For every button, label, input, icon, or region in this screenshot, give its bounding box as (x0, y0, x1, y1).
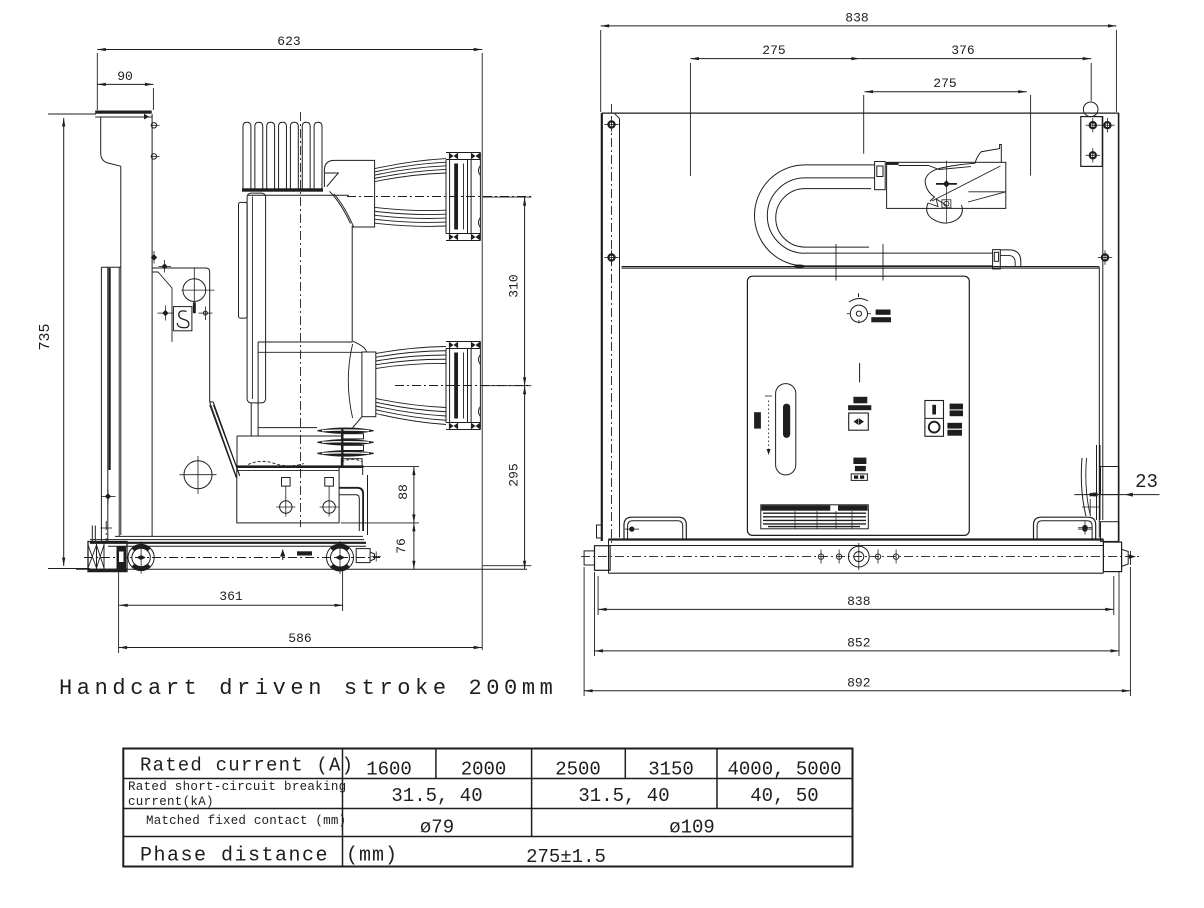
svg-text:295: 295 (507, 463, 522, 486)
svg-text:Handcart driven stroke 200mm: Handcart driven stroke 200mm (59, 676, 557, 701)
svg-text:1600: 1600 (366, 759, 412, 781)
svg-text:ø109: ø109 (669, 817, 715, 839)
svg-text:735: 735 (37, 323, 54, 350)
svg-text:2500: 2500 (555, 759, 601, 781)
svg-text:310: 310 (507, 274, 522, 297)
svg-text:90: 90 (117, 69, 133, 84)
svg-text:838: 838 (845, 11, 868, 26)
svg-text:623: 623 (277, 34, 300, 49)
svg-text:23: 23 (1135, 471, 1158, 493)
svg-text:2000: 2000 (461, 759, 507, 781)
svg-text:275±1.5: 275±1.5 (526, 846, 606, 868)
svg-text:(mm): (mm) (346, 845, 398, 868)
svg-text:Rated current (A): Rated current (A) (140, 755, 354, 777)
svg-text:361: 361 (219, 589, 243, 604)
svg-text:586: 586 (288, 631, 311, 646)
svg-text:852: 852 (847, 636, 870, 651)
svg-text:4000, 5000: 4000, 5000 (727, 759, 841, 781)
svg-text:892: 892 (847, 676, 870, 691)
svg-text:3150: 3150 (648, 759, 694, 781)
svg-text:76: 76 (394, 538, 409, 554)
svg-text:88: 88 (396, 484, 411, 500)
svg-text:Phase distance: Phase distance (140, 845, 329, 868)
svg-text:Matched fixed contact (mm): Matched fixed contact (mm) (146, 814, 346, 828)
svg-text:31.5, 40: 31.5, 40 (391, 785, 482, 807)
svg-text:31.5, 40: 31.5, 40 (578, 785, 669, 807)
svg-text:376: 376 (951, 43, 974, 58)
svg-text:838: 838 (847, 594, 870, 609)
svg-text:40, 50: 40, 50 (750, 785, 818, 807)
svg-text:Rated short-circuit breaking: Rated short-circuit breaking (128, 780, 346, 794)
svg-text:275: 275 (762, 43, 785, 58)
svg-text:current(kA): current(kA) (128, 795, 214, 809)
svg-text:275: 275 (933, 76, 956, 91)
svg-text:ø79: ø79 (420, 817, 454, 839)
